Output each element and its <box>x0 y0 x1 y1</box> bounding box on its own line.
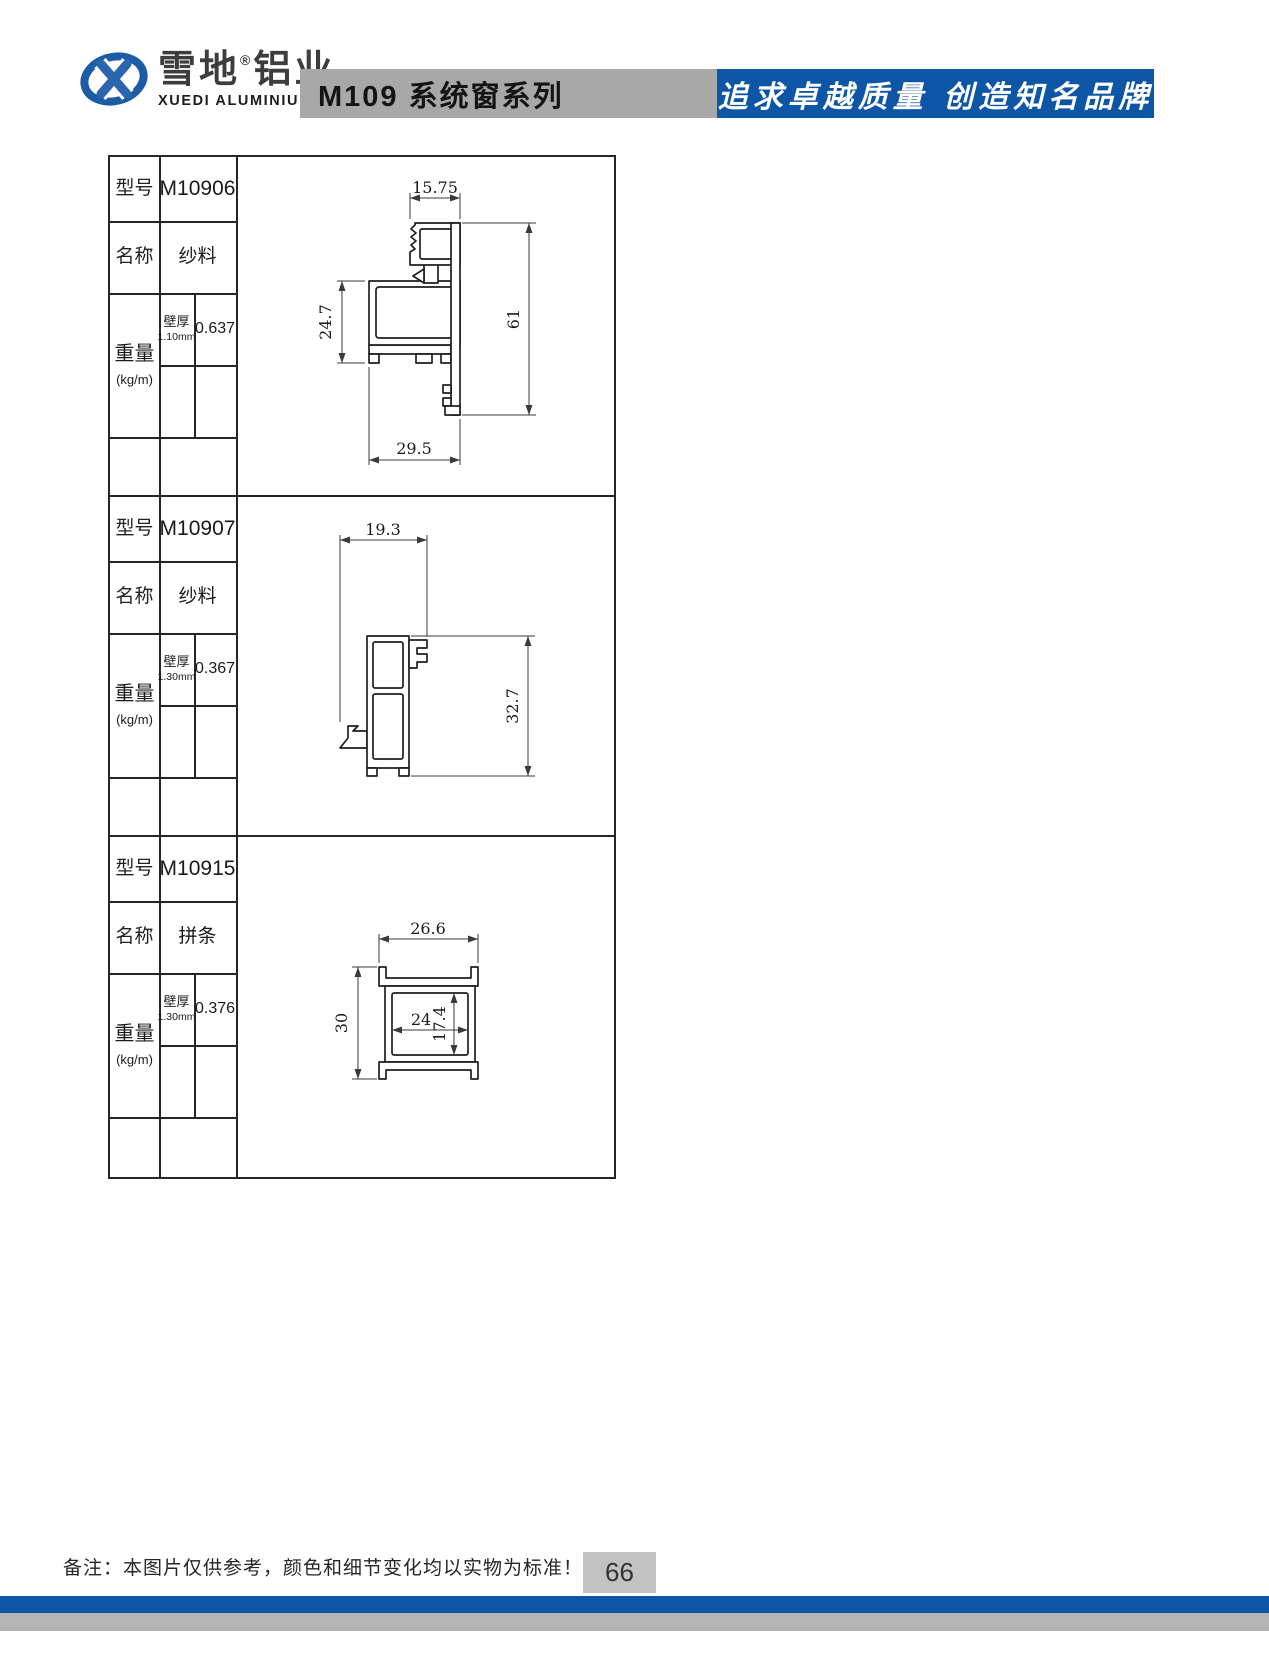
wall-thickness-value: 1.10mm <box>158 331 196 343</box>
profile-block-m10915: 型号 M10915 名称 拼条 重量 (kg/m) 壁厚 1.30mm 0.37… <box>110 837 614 1177</box>
weight-label: 重量 (kg/m) <box>110 973 159 1117</box>
model-value: M10907 <box>159 497 236 561</box>
series-title-band: M109 系统窗系列 <box>300 69 717 118</box>
dim-right-height: 32.7 <box>503 688 522 724</box>
wall-thickness-cell: 壁厚 1.10mm <box>159 293 194 365</box>
registered-mark: ® <box>240 52 253 68</box>
profile-spec-table: 型号 M10906 名称 纱料 重量 (kg/m) 壁厚 1.10mm 0.63… <box>108 155 616 1179</box>
wall-thickness-label: 壁厚 <box>163 995 189 1010</box>
dim-top-width: 15.75 <box>412 178 458 197</box>
weight-label: 重量 (kg/m) <box>110 293 159 437</box>
grid-line <box>159 1045 236 1047</box>
weight-value: 0.367 <box>194 633 236 705</box>
wall-thickness-label: 壁厚 <box>163 655 189 670</box>
dim-left-height: 24.7 <box>316 304 335 340</box>
dim-top-width: 26.6 <box>410 919 446 938</box>
dim-top-width: 19.3 <box>365 520 401 539</box>
model-label: 型号 <box>110 837 159 901</box>
weight-value: 0.637 <box>194 293 236 365</box>
weight-label-cn: 重量 <box>115 1023 155 1046</box>
weight-unit: (kg/m) <box>116 1053 153 1068</box>
name-value: 纱料 <box>159 561 236 633</box>
weight-unit: (kg/m) <box>116 713 153 728</box>
grid-line <box>110 777 236 779</box>
wall-thickness-cell: 壁厚 1.30mm <box>159 973 194 1045</box>
dim-right-height: 61 <box>504 309 523 329</box>
page-number: 66 <box>583 1552 656 1593</box>
catalog-page: 雪地®铝业 XUEDI ALUMINIUM M109 系统窗系列 追求卓越质量 … <box>0 0 1269 1675</box>
name-value: 拼条 <box>159 901 236 973</box>
dim-left-height: 30 <box>332 1013 351 1033</box>
grid-line <box>110 437 236 439</box>
company-logo: 雪地®铝业 XUEDI ALUMINIUM <box>80 50 335 109</box>
wall-thickness-label: 壁厚 <box>163 315 189 330</box>
xuedi-logo-icon <box>80 50 148 108</box>
model-value: M10906 <box>159 157 236 221</box>
footer-gray-bar <box>0 1613 1269 1631</box>
name-value: 纱料 <box>159 221 236 293</box>
slogan-text: 追求卓越质量 创造知名品牌 <box>718 72 1153 116</box>
weight-label: 重量 (kg/m) <box>110 633 159 777</box>
grid-line <box>110 1117 236 1119</box>
profile-drawing-m10915: 26.6 30 24 17.4 <box>236 837 614 1174</box>
profile-drawing-m10906: 15.75 24.7 61 29.5 <box>236 157 614 494</box>
weight-label-cn: 重量 <box>115 343 155 366</box>
name-label: 名称 <box>110 901 159 973</box>
model-value: M10915 <box>159 837 236 901</box>
dim-bottom-width: 29.5 <box>396 439 432 458</box>
grid-line <box>159 705 236 707</box>
weight-label-cn: 重量 <box>115 683 155 706</box>
slogan-band: 追求卓越质量 创造知名品牌 <box>717 69 1154 118</box>
grid-line <box>159 365 236 367</box>
dim-inner-width: 24 <box>411 1010 431 1029</box>
weight-unit: (kg/m) <box>116 373 153 388</box>
profile-block-m10907: 型号 M10907 名称 纱料 重量 (kg/m) 壁厚 1.30mm 0.36… <box>110 497 614 837</box>
series-title: M109 系统窗系列 <box>318 73 564 115</box>
model-label: 型号 <box>110 157 159 221</box>
wall-thickness-value: 1.30mm <box>158 1011 196 1023</box>
wall-thickness-value: 1.30mm <box>158 671 196 683</box>
wall-thickness-cell: 壁厚 1.30mm <box>159 633 194 705</box>
profile-drawing-m10907: 19.3 32.7 <box>236 497 614 834</box>
profile-block-m10906: 型号 M10906 名称 纱料 重量 (kg/m) 壁厚 1.10mm 0.63… <box>110 157 614 497</box>
footer-note: 备注：本图片仅供参考，颜色和细节变化均以实物为标准！ <box>63 1553 583 1580</box>
dim-inner-height: 17.4 <box>430 1006 449 1042</box>
weight-value: 0.376 <box>194 973 236 1045</box>
footer-blue-bar <box>0 1596 1269 1613</box>
name-label: 名称 <box>110 561 159 633</box>
name-label: 名称 <box>110 221 159 293</box>
model-label: 型号 <box>110 497 159 561</box>
